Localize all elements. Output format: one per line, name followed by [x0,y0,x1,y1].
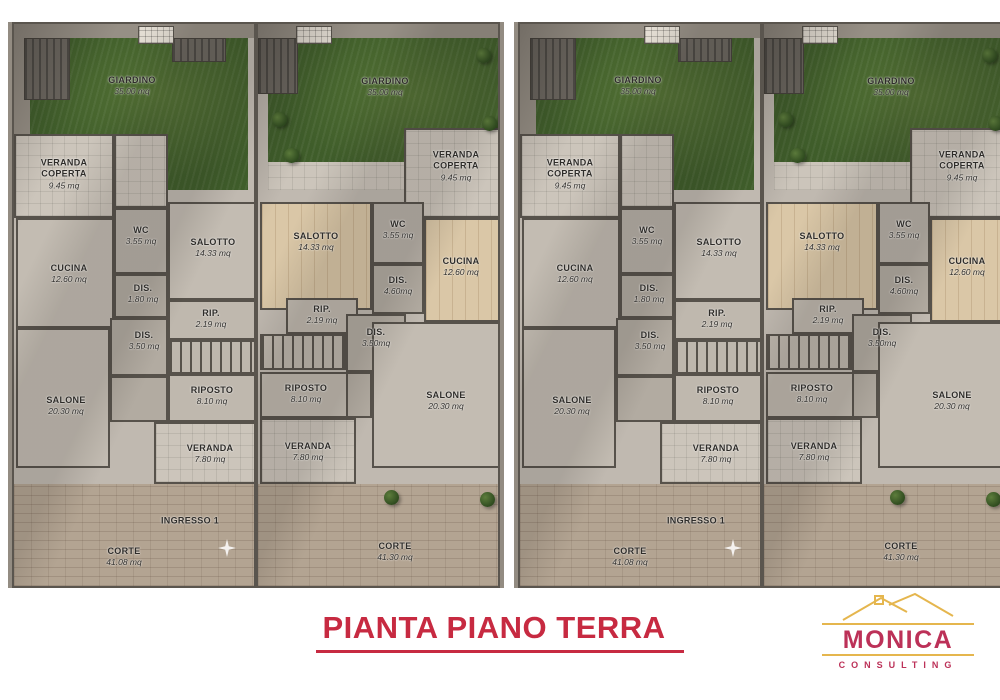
roof-top-left [258,38,298,94]
entry-path [114,134,168,208]
room-veranda-label: VERANDA7.80 mq [791,441,838,463]
room-veranda-coperta-label: VERANDA COPERTA9.45 mq [539,157,601,190]
room-disimpegno-label: DIS.3.50mq [362,327,390,349]
room-salotto-label: SALOTTO14.33 mq [191,237,236,259]
room-veranda-label: VERANDA7.80 mq [285,441,332,463]
bush-icon [982,48,997,63]
room-disimpegno-label: DIS.3.50mq [868,327,896,349]
room-rip-label: RIP.2.19 mq [307,304,338,326]
room-wc-label: WC3.55 mq [126,225,157,247]
room-ingresso-label: INGRESSO 1 [667,515,725,526]
logo-divider-top [822,623,974,625]
room-salotto-label: SALOTTO14.33 mq [294,231,339,253]
room-cucina-label: CUCINA12.60 mq [51,263,88,285]
room-corte-label: CORTE41.30 mq [883,541,918,563]
floor-plan-pair: GIARDINO35.00 mq VERANDA COPERTA9.45 mq … [514,22,1000,588]
brand-subtitle: CONSULTING [822,660,974,670]
room-salotto-label: SALOTTO14.33 mq [697,237,742,259]
room-salotto [260,202,372,310]
room-corte [764,484,1000,586]
room-salone-label: SALONE20.30 mq [46,395,85,417]
roof-top-left [530,38,576,100]
bush-icon [384,490,399,505]
room-disimpegno-label: DIS.3.50 mq [635,330,666,352]
bush-icon [482,116,497,131]
roof-top-left [764,38,804,94]
floor-plan-unit-right: GIARDINO35.00 mq VERANDA COPERTA9.45 mq … [256,22,500,588]
garden-wall-top [14,24,254,38]
roof-top-right [678,38,732,62]
room-corte [258,484,498,586]
bush-icon [476,48,491,63]
room-riposto-label: RIPOSTO8.10 mq [791,383,833,405]
bush-icon [986,492,1000,507]
bush-icon [988,116,1000,131]
garden-patio [774,162,910,190]
roof-top-left [24,38,70,100]
bush-icon [480,492,495,507]
room-salone-label: SALONE20.30 mq [426,390,465,412]
floor-plan-unit-right: GIARDINO35.00 mq VERANDA COPERTA9.45 mq … [762,22,1000,588]
bush-icon [890,490,905,505]
floor-plan-unit-left: GIARDINO35.00 mq VERANDA COPERTA9.45 mq … [12,22,256,588]
logo-divider-bottom [822,654,974,656]
room-disimpegno-piccolo-label: DIS.1.80 mq [634,283,665,305]
room-wc-label: WC3.55 mq [632,225,663,247]
room-corte-label: CORTE41.08 mq [106,546,141,568]
entry-path [620,134,674,208]
hallway [852,372,878,418]
room-rip-label: RIP.2.19 mq [702,308,733,330]
garden-gate [138,26,174,44]
bush-icon [790,148,805,163]
room-corte [520,484,760,586]
room-giardino-label: GIARDINO35.00 mq [108,75,155,97]
brand-logo: MONICA CONSULTING [822,592,974,670]
room-riposto-label: RIPOSTO8.10 mq [191,385,233,407]
room-veranda-label: VERANDA7.80 mq [187,443,234,465]
garden-wall-top [258,24,498,38]
hallway [616,376,674,422]
staircase [674,340,762,374]
room-salone-label: SALONE20.30 mq [932,390,971,412]
room-rip-label: RIP.2.19 mq [813,304,844,326]
room-cucina-label: CUCINA12.60 mq [443,256,480,278]
room-ingresso-label: INGRESSO 1 [161,515,219,526]
room-giardino-label: GIARDINO35.00 mq [361,76,408,98]
room-rip-label: RIP.2.19 mq [196,308,227,330]
floor-plan-pair: GIARDINO35.00 mq VERANDA COPERTA9.45 mq … [8,22,504,588]
staircase [168,340,256,374]
room-corte [14,484,254,586]
room-wc-label: WC3.55 mq [889,219,920,241]
bush-icon [778,112,793,127]
garden-gate [802,26,838,44]
garden-patio [268,162,404,190]
room-veranda-coperta-label: VERANDA COPERTA9.45 mq [425,149,487,182]
staircase [260,334,346,370]
garden-gate [644,26,680,44]
room-wc-label: WC3.55 mq [383,219,414,241]
floor-plan-unit-left: GIARDINO35.00 mq VERANDA COPERTA9.45 mq … [518,22,762,588]
room-corte-label: CORTE41.30 mq [377,541,412,563]
brand-name: MONICA [822,627,974,653]
roof-top-right [172,38,226,62]
room-riposto-label: RIPOSTO8.10 mq [697,385,739,407]
room-salotto-label: SALOTTO14.33 mq [800,231,845,253]
page-title: PIANTA PIANO TERRA [316,610,683,653]
room-disimpegno-label: DIS.3.50 mq [129,330,160,352]
garden-wall-top [520,24,760,38]
hallway [110,376,168,422]
room-disimpegno-piccolo-label: DIS.1.80 mq [128,283,159,305]
room-giardino-label: GIARDINO35.00 mq [614,75,661,97]
room-cucina-label: CUCINA12.60 mq [949,256,986,278]
room-veranda-coperta-label: VERANDA COPERTA9.45 mq [931,149,993,182]
room-disimpegno-grande-label: DIS.4.60mq [384,275,412,297]
garden-gate [296,26,332,44]
house-roof-icon [837,592,959,622]
room-giardino-label: GIARDINO35.00 mq [867,76,914,98]
room-salotto [766,202,878,310]
room-veranda-label: VERANDA7.80 mq [693,443,740,465]
floor-plans: GIARDINO35.00 mq VERANDA COPERTA9.45 mq … [8,22,1000,588]
bush-icon [284,148,299,163]
hallway [346,372,372,418]
room-riposto-label: RIPOSTO8.10 mq [285,383,327,405]
garden-wall-top [764,24,1000,38]
room-salone-label: SALONE20.30 mq [552,395,591,417]
bush-icon [272,112,287,127]
staircase [766,334,852,370]
room-cucina-label: CUCINA12.60 mq [557,263,594,285]
room-veranda-coperta-label: VERANDA COPERTA9.45 mq [33,157,95,190]
room-corte-label: CORTE41.08 mq [612,546,647,568]
room-disimpegno-grande-label: DIS.4.60mq [890,275,918,297]
